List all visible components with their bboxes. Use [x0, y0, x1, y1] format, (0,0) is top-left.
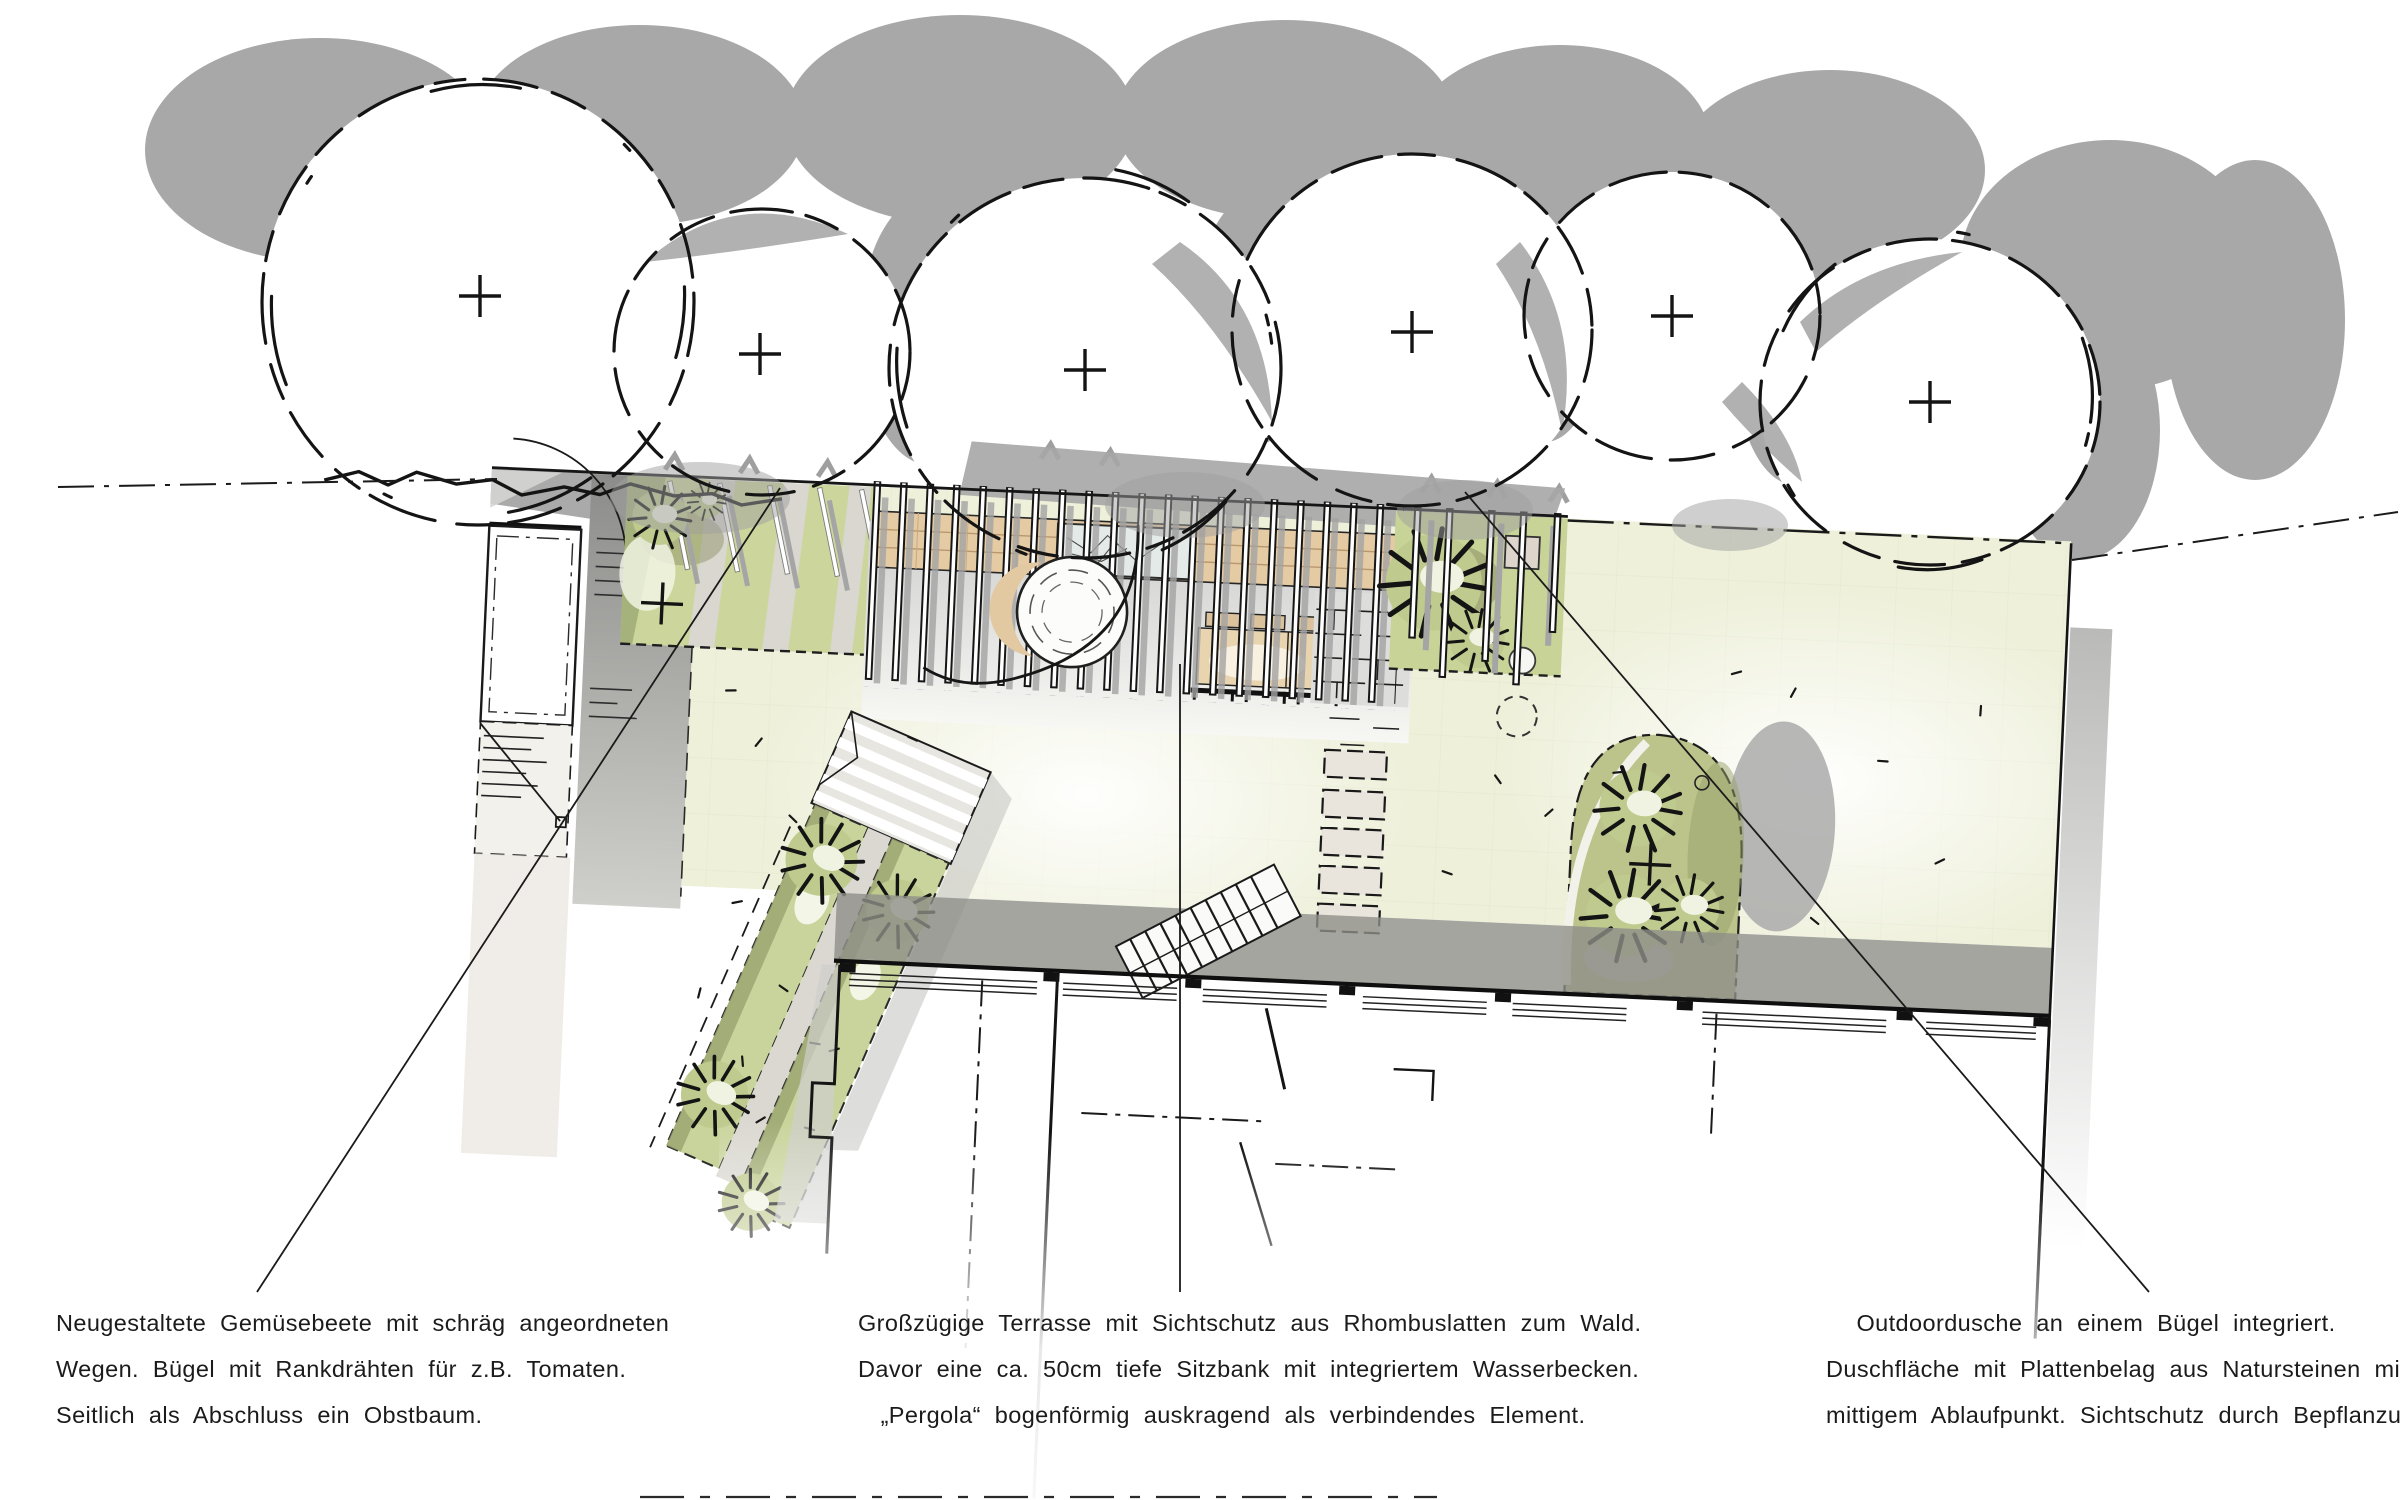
annotation-line: Seitlich als Abschluss ein Obstbaum. — [56, 1392, 666, 1438]
annotation-line: „Pergola“ bogenförmig auskragend als ver… — [858, 1392, 1608, 1438]
annotation-line: Outdoordusche an einem Bügel integriert. — [1826, 1300, 2366, 1346]
stepping-stones — [1317, 750, 1387, 934]
shed — [461, 522, 586, 1158]
annotation-line: Duschfläche mit Plattenbelag aus Naturst… — [1826, 1346, 2366, 1392]
annotation-line: Wegen. Bügel mit Rankdrähten für z.B. To… — [56, 1346, 666, 1392]
annotation-line: Großzügige Terrasse mit Sichtschutz aus … — [858, 1300, 1608, 1346]
garden-plan-page: Neugestaltete Gemüsebeete mit schräg ang… — [0, 0, 2400, 1500]
annotation-line: Neugestaltete Gemüsebeete mit schräg ang… — [56, 1300, 666, 1346]
annotation-line: mittigem Ablaufpunkt. Sichtschutz durch … — [1826, 1392, 2366, 1438]
annotation-terrace: Großzügige Terrasse mit Sichtschutz aus … — [858, 1300, 1608, 1438]
annotation-outdoor-shower: Outdoordusche an einem Bügel integriert.… — [1826, 1300, 2366, 1438]
garden-plan-drawing — [0, 0, 2400, 1500]
annotation-vegetable-beds: Neugestaltete Gemüsebeete mit schräg ang… — [56, 1300, 666, 1438]
annotation-line: Davor eine ca. 50cm tiefe Sitzbank mit i… — [858, 1346, 1608, 1392]
